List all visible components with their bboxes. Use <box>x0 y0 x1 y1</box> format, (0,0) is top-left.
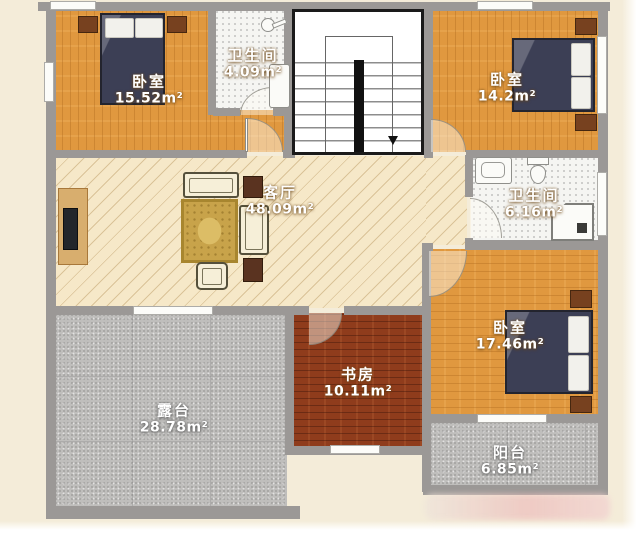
nightstand <box>570 290 592 308</box>
floor-plan: 卧室 15.52m² 卫生间 4.09m² 卧室 14.2m² 客厅 48.09… <box>0 0 640 537</box>
room-area: 10.11m² <box>324 384 393 400</box>
room-area: 15.52m² <box>115 91 184 107</box>
armchair <box>196 262 228 290</box>
sofa-seat-line <box>202 268 222 285</box>
room-name: 卫生间 <box>224 47 282 64</box>
room-label-bedroom-tr: 卧室 14.2m² <box>478 71 536 104</box>
tv <box>63 208 78 250</box>
wall-study-top <box>285 306 309 315</box>
nightstand <box>575 18 597 35</box>
pillow <box>568 316 589 353</box>
window-bedroom-tr-right <box>597 36 607 114</box>
room-label-balcony: 阳台 6.85m² <box>481 444 539 477</box>
sink-basin <box>481 162 505 178</box>
nightstand <box>575 114 597 131</box>
room-label-living: 客厅 48.09m² <box>246 184 315 217</box>
window-bedroom-tl-top <box>50 1 96 10</box>
room-name: 卧室 <box>478 71 536 88</box>
rug <box>181 199 238 263</box>
room-area: 6.85m² <box>481 462 539 478</box>
room-name: 露台 <box>140 402 209 419</box>
door-leaf-bedroom-tl <box>245 118 248 152</box>
sofa-three-seat <box>183 172 239 198</box>
room-name: 书房 <box>324 366 393 383</box>
room-area: 17.46m² <box>476 337 545 353</box>
room-label-bedroom-tl: 卧室 15.52m² <box>115 73 184 106</box>
pillow <box>105 18 134 38</box>
wall-terrace-right <box>285 306 294 455</box>
pillow <box>135 18 163 38</box>
wall-terrace-bottom <box>46 506 300 519</box>
nightstand <box>78 16 98 33</box>
window-living-terrace <box>133 306 213 315</box>
staircase <box>292 9 424 155</box>
room-label-bathroom-right: 卫生间 6.16m² <box>505 187 563 220</box>
wall-bathroom-right-bottom <box>465 240 608 250</box>
room-area: 4.09m² <box>224 65 282 81</box>
nightstand <box>167 16 187 33</box>
stair-center-wall <box>354 60 364 152</box>
room-area: 48.09m² <box>246 202 315 218</box>
pillow <box>568 355 589 391</box>
room-name: 阳台 <box>481 444 539 461</box>
room-label-bathroom-top: 卫生间 4.09m² <box>224 47 282 80</box>
room-area: 6.16m² <box>505 205 563 221</box>
room-name: 卧室 <box>476 319 545 336</box>
room-area: 14.2m² <box>478 89 536 105</box>
room-floor-living-ext <box>426 156 467 245</box>
sofa-seat-line <box>189 178 233 193</box>
toilet-icon <box>527 157 549 165</box>
room-name: 卫生间 <box>505 187 563 204</box>
room-label-study: 书房 10.11m² <box>324 366 393 399</box>
wall-bathroom-top-left <box>208 2 216 115</box>
room-area: 28.78m² <box>140 420 209 436</box>
window-bathroom-right <box>597 172 607 236</box>
room-name: 卧室 <box>115 73 184 90</box>
wall-study-top2 <box>344 306 430 315</box>
page-edge-bottom <box>0 521 640 537</box>
room-label-terrace: 露台 28.78m² <box>140 402 209 435</box>
stair-direction-arrow-icon <box>388 136 398 145</box>
window-bedroom-br-balcony <box>477 414 547 423</box>
wall-bedroom-tl-bottom <box>46 150 247 158</box>
nightstand <box>570 396 592 413</box>
shower-drain-icon <box>577 223 587 233</box>
window-study-bottom <box>330 445 380 454</box>
side-table <box>243 258 263 282</box>
window-bedroom-tr-top <box>477 1 533 10</box>
page-edge-right <box>622 0 640 537</box>
pillow <box>571 43 591 76</box>
room-label-bedroom-br: 卧室 17.46m² <box>476 319 545 352</box>
sink <box>475 157 512 184</box>
room-name: 客厅 <box>246 184 315 201</box>
window-bedroom-tl-left <box>44 62 54 102</box>
wall-balcony-left <box>422 414 431 492</box>
watermark-blur <box>425 494 610 520</box>
wall-bathroom-right-left <box>465 155 473 197</box>
wall-bathroom-top-bottom <box>213 108 240 116</box>
pillow <box>571 77 591 109</box>
